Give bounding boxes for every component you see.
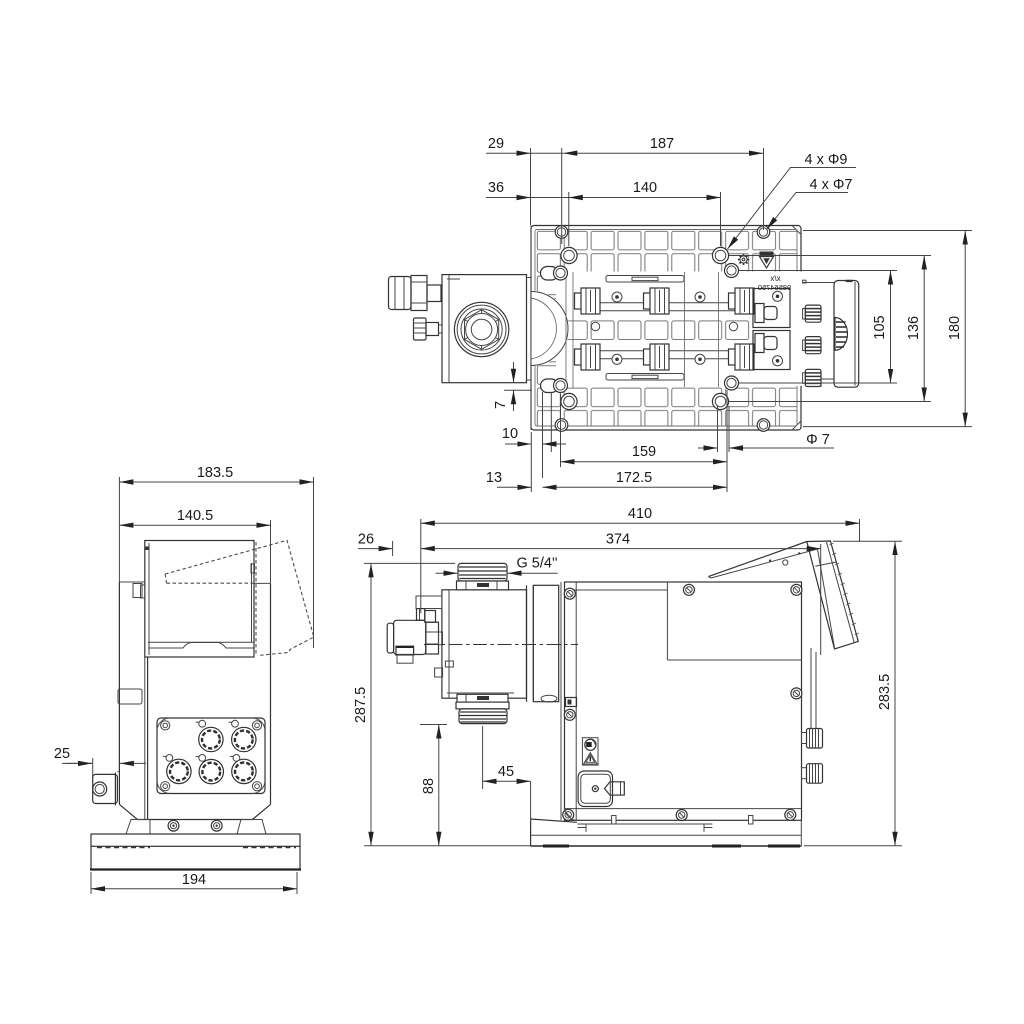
svg-text:287.5: 287.5 (353, 687, 369, 723)
svg-text:10: 10 (502, 426, 518, 442)
svg-text:180: 180 (947, 316, 963, 340)
svg-text:374: 374 (606, 532, 630, 548)
svg-text:410: 410 (628, 506, 652, 522)
svg-text:x/x: x/x (770, 274, 780, 283)
svg-text:7: 7 (493, 401, 509, 409)
svg-text:187: 187 (650, 136, 674, 152)
svg-text:98564750: 98564750 (758, 283, 791, 292)
svg-text:136: 136 (906, 316, 922, 340)
svg-text:88: 88 (421, 778, 437, 794)
svg-text:172.5: 172.5 (616, 470, 652, 486)
svg-text:13: 13 (486, 470, 502, 486)
svg-text:36: 36 (488, 180, 504, 196)
svg-text:194: 194 (182, 872, 206, 888)
svg-text:283.5: 283.5 (877, 674, 893, 710)
svg-text:183.5: 183.5 (197, 465, 233, 481)
svg-text:140.5: 140.5 (177, 508, 213, 524)
svg-text:140: 140 (633, 180, 657, 196)
svg-text:G 5/4'': G 5/4'' (516, 556, 557, 572)
svg-text:159: 159 (632, 444, 656, 460)
svg-text:25: 25 (54, 746, 70, 762)
svg-text:Φ 7: Φ 7 (806, 432, 830, 448)
svg-text:4 x Φ9: 4 x Φ9 (804, 152, 847, 168)
svg-text:29: 29 (488, 136, 504, 152)
svg-text:4 x Φ7: 4 x Φ7 (809, 177, 852, 193)
svg-text:26: 26 (358, 532, 374, 548)
svg-text:105: 105 (872, 315, 888, 339)
svg-text:45: 45 (498, 764, 514, 780)
